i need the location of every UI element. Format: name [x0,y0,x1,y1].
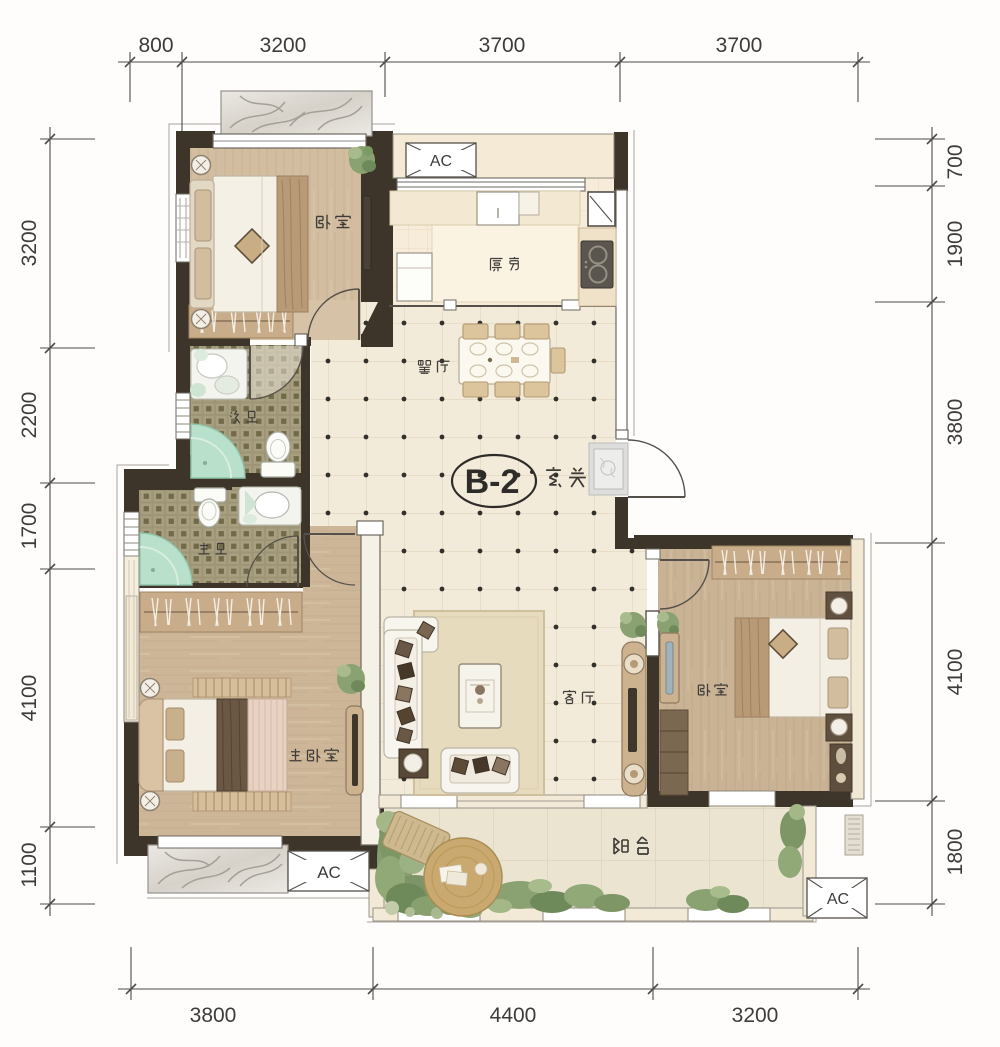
svg-text:B-2: B-2 [465,463,520,501]
svg-text:1700: 1700 [18,503,41,550]
svg-text:3700: 3700 [479,34,526,57]
svg-text:AC: AC [430,153,452,170]
svg-text:4100: 4100 [944,649,967,696]
svg-text:1100: 1100 [18,842,41,887]
svg-text:2200: 2200 [18,392,41,439]
svg-text:1900: 1900 [944,221,967,268]
svg-text:4400: 4400 [490,1004,537,1027]
svg-text:3700: 3700 [716,34,763,57]
svg-text:800: 800 [138,34,173,57]
svg-text:700: 700 [944,144,967,179]
svg-text:3200: 3200 [732,1004,779,1027]
svg-text:AC: AC [827,891,849,908]
svg-text:3800: 3800 [944,399,967,446]
svg-text:3800: 3800 [190,1004,237,1027]
svg-text:3200: 3200 [18,220,41,267]
svg-text:AC: AC [317,863,341,882]
svg-text:1800: 1800 [944,829,967,876]
svg-text:3200: 3200 [260,34,307,57]
svg-text:4100: 4100 [18,675,41,722]
